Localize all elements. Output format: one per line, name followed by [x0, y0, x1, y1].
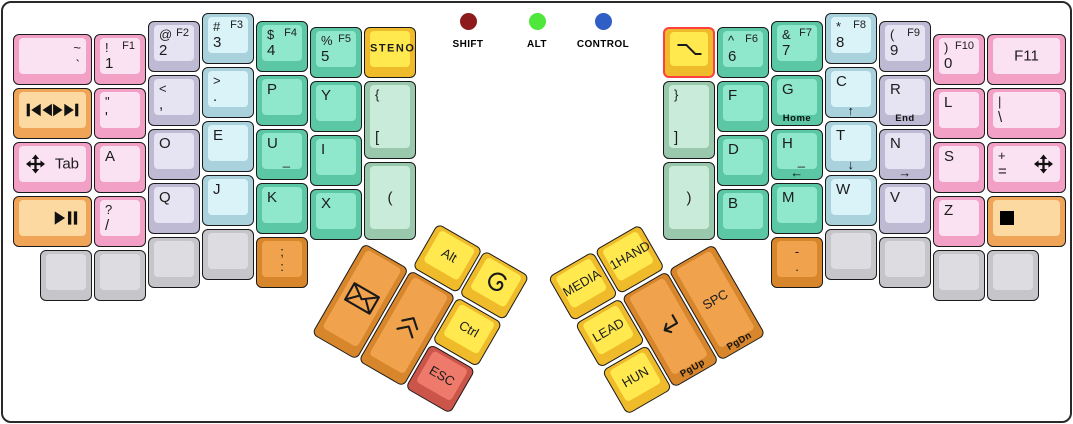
key-stop[interactable] [987, 196, 1066, 247]
key-z[interactable]: Z [933, 196, 985, 247]
key-k-cap: K [262, 187, 302, 223]
key-blank-r1-cap [831, 233, 871, 269]
key-t-legend: T [836, 128, 845, 143]
key-blank-r2[interactable] [879, 237, 931, 288]
key-semicolon-cap: ;: [262, 241, 302, 277]
key-h-front-legend: ← [772, 168, 822, 179]
key-a[interactable]: A [94, 142, 146, 193]
prev-track-icon [26, 102, 54, 119]
key-a-legend: A [105, 149, 115, 164]
key-5[interactable]: %F55 [310, 27, 362, 78]
key-c-cap: C [831, 71, 871, 107]
key-g[interactable]: GHome [771, 75, 823, 126]
move-icon [1034, 155, 1053, 174]
debian-swirl-icon [473, 262, 519, 302]
key-x-cap: X [316, 193, 356, 229]
key-3-cap: #F33 [208, 17, 248, 53]
key-quote-legend: ' [105, 110, 108, 125]
key-1-legend: 1 [105, 56, 113, 71]
key-j-cap: J [208, 179, 248, 215]
key-media-legend: MEDIA [561, 268, 602, 299]
key-8-legend: F8 [853, 20, 866, 31]
key-right-brace-legend: ] [674, 130, 678, 145]
key-debian-cap [470, 257, 523, 308]
key-4-legend: 4 [267, 43, 275, 58]
alt-indicator-label: ALT [527, 39, 547, 50]
key-right-paren[interactable]: ) [663, 162, 715, 240]
key-backslash-legend: | [998, 95, 1001, 108]
key-9-cap: (F99 [885, 25, 925, 61]
key-g-front-legend: Home [772, 114, 822, 125]
key-slash-cap: ?/ [100, 200, 140, 236]
key-w-legend: W [836, 182, 850, 197]
move-icon [26, 155, 45, 174]
key-z-cap: Z [939, 200, 979, 236]
key-lead-cap: LEAD [582, 304, 635, 355]
key-quote-cap: "' [100, 92, 140, 128]
key-f11-cap: F11 [993, 38, 1060, 74]
key-q[interactable]: Q [148, 183, 200, 234]
key-left-bracket-legend: [ [375, 130, 379, 145]
key-hun-cap: HUN [609, 351, 662, 402]
key-z-legend: Z [944, 203, 953, 218]
key-blank-l4[interactable] [202, 229, 254, 280]
key-tab-cap: Tab [19, 146, 86, 182]
key-e-cap: E [208, 125, 248, 161]
key-c-legend: C [836, 74, 847, 89]
key-quote-legend: " [105, 95, 110, 108]
key-3-legend: 3 [213, 35, 221, 50]
key-p[interactable]: P [256, 75, 308, 126]
key-blank-r4-cap [993, 254, 1033, 290]
key-backslash-cap: |\ [993, 92, 1060, 128]
key-n[interactable]: N→ [879, 129, 931, 180]
key-6-legend: F6 [745, 34, 758, 45]
key-j[interactable]: J [202, 175, 254, 226]
key-r-front-legend: End [880, 114, 930, 125]
key-4-legend: F4 [284, 28, 297, 39]
key-o-legend: O [159, 136, 171, 151]
key-minus[interactable]: -. [771, 237, 823, 288]
key-1-legend: F1 [122, 41, 135, 52]
key-m-legend: M [782, 190, 795, 205]
key-r-legend: R [890, 82, 901, 97]
key-semicolon-legend: : [262, 260, 302, 273]
key-minus-cap: -. [777, 241, 817, 277]
key-steno[interactable]: STENO [364, 27, 416, 78]
key-x[interactable]: X [310, 189, 362, 240]
key-e[interactable]: E [202, 121, 254, 172]
key-2-cap: @F22 [154, 25, 194, 61]
key-slash-legend: ? [105, 203, 112, 216]
key-grave-cap: ~` [19, 38, 86, 74]
key-e-legend: E [213, 128, 223, 143]
key-8-legend: 8 [836, 35, 844, 50]
option-icon [670, 40, 708, 58]
key-g-legend: G [782, 82, 794, 97]
key-blank-r4[interactable] [987, 250, 1039, 301]
key-0-legend: ) [944, 41, 948, 54]
key-grave-legend: ` [76, 58, 80, 71]
key-0[interactable]: )F100 [933, 34, 985, 85]
key-i[interactable]: I [310, 135, 362, 186]
key-left-bracket-cap: {[ [370, 85, 410, 148]
key-p-legend: P [267, 82, 277, 97]
key-i-cap: I [316, 139, 356, 175]
key-esc-legend: ESC [421, 360, 462, 391]
key-quote[interactable]: "' [94, 88, 146, 139]
key-5-legend: 5 [321, 49, 329, 64]
key-m-cap: M [777, 187, 817, 223]
key-semicolon[interactable]: ;: [256, 237, 308, 288]
key-7-cap: &F77 [777, 25, 817, 61]
key-h-cap: H_ [777, 133, 817, 169]
key-1hand-cap: 1HAND [602, 231, 655, 282]
key-7-legend: 7 [782, 43, 790, 58]
key-f11-legend: F11 [993, 49, 1060, 64]
key-plus-equals-cap: += [993, 146, 1060, 182]
key-8-legend: * [836, 20, 841, 33]
key-option[interactable] [663, 27, 715, 78]
key-n-front-legend: → [880, 168, 930, 179]
key-d-legend: D [728, 142, 739, 157]
key-comma-legend: , [159, 97, 163, 112]
key-a-cap: A [100, 146, 140, 182]
key-5-legend: % [321, 34, 333, 47]
alt-indicator-dot [529, 13, 546, 30]
key-backslash[interactable]: |\ [987, 88, 1066, 139]
key-x-legend: X [321, 196, 331, 211]
key-n-legend: N [890, 136, 901, 151]
key-s-legend: S [944, 149, 954, 164]
key-g-cap: G [777, 79, 817, 115]
key-0-legend: F10 [955, 41, 974, 52]
key-0-legend: 0 [944, 56, 952, 71]
key-period-cap: >. [208, 71, 248, 107]
key-9-legend: ( [890, 28, 894, 41]
control-indicator-label: CONTROL [577, 39, 629, 50]
key-grave-legend: ~ [73, 41, 81, 54]
key-media-cap: MEDIA [555, 258, 608, 309]
envelope-icon [339, 278, 385, 318]
key-6-legend: 6 [728, 49, 736, 64]
key-f11[interactable]: F11 [987, 34, 1066, 85]
key-right-brace-cap: }] [669, 85, 709, 148]
key-s-cap: S [939, 146, 979, 182]
keyboard-board: ~`Tab!F11"'A?/@F22<,OQ#F33>.EJ$F44PU_K%F… [1, 1, 1072, 423]
key-tab-legend: Tab [55, 157, 79, 172]
key-7-legend: F7 [799, 28, 812, 39]
key-6[interactable]: ^F66 [717, 27, 769, 78]
key-c-front-legend: ↑ [826, 106, 876, 117]
key-blank-l2[interactable] [94, 250, 146, 301]
key-2-legend: 2 [159, 43, 167, 58]
key-v[interactable]: V [879, 183, 931, 234]
key-u-cap: U_ [262, 133, 302, 169]
key-o[interactable]: O [148, 129, 200, 180]
key-slash-legend: / [105, 218, 109, 233]
keyboard-layout-screenshot: ~`Tab!F11"'A?/@F22<,OQ#F33>.EJ$F44PU_K%F… [0, 0, 1073, 424]
key-y-cap: Y [316, 85, 356, 121]
shift-indicator-label: SHIFT [453, 39, 484, 50]
key-1-cap: !F11 [100, 38, 140, 74]
key-left-paren-cap: ( [370, 166, 410, 229]
key-8-cap: *F88 [831, 17, 871, 53]
key-3-legend: # [213, 20, 220, 33]
key-h-legend: H [782, 136, 793, 151]
key-9-legend: 9 [890, 43, 898, 58]
key-t-cap: T [831, 125, 871, 161]
key-period-legend: . [213, 89, 217, 104]
control-indicator-dot [595, 13, 612, 30]
key-comma[interactable]: <, [148, 75, 200, 126]
key-slash[interactable]: ?/ [94, 196, 146, 247]
key-5-cap: %F55 [316, 31, 356, 67]
key-blank-l1[interactable] [40, 250, 92, 301]
key-4-cap: $F44 [262, 25, 302, 61]
key-7-legend: & [782, 28, 791, 41]
key-3-legend: F3 [230, 20, 243, 31]
key-i-legend: I [321, 142, 325, 157]
key-blank-r3[interactable] [933, 250, 985, 301]
key-r[interactable]: REnd [879, 75, 931, 126]
key-f-cap: F [723, 85, 763, 121]
key-blank-l3[interactable] [148, 237, 200, 288]
key-blank-r2-cap [885, 241, 925, 277]
key-7[interactable]: &F77 [771, 21, 823, 72]
key-y[interactable]: Y [310, 81, 362, 132]
key-left-bracket-legend: { [375, 88, 379, 101]
key-l-legend: L [944, 95, 952, 110]
key-hun-legend: HUN [615, 361, 656, 392]
key-blank-l1-cap [46, 254, 86, 290]
stop-icon [1000, 211, 1014, 225]
key-left-paren-legend: ( [370, 190, 410, 205]
key-m[interactable]: M [771, 183, 823, 234]
key-4-legend: $ [267, 28, 274, 41]
key-o-cap: O [154, 133, 194, 169]
key-tab[interactable]: Tab [13, 142, 92, 193]
key-q-legend: Q [159, 190, 171, 205]
key-minus-legend: . [777, 260, 817, 273]
key-right-brace[interactable]: }] [663, 81, 715, 159]
key-period-legend: > [213, 74, 221, 87]
play-pause-icon [54, 210, 79, 227]
key-left-paren[interactable]: ( [364, 162, 416, 240]
key-6-legend: ^ [728, 34, 734, 47]
key-5-legend: F5 [338, 34, 351, 45]
key-h[interactable]: H_← [771, 129, 823, 180]
key-2-legend: @ [159, 28, 172, 41]
key-j-legend: J [213, 182, 221, 197]
key-right-paren-cap: ) [669, 166, 709, 229]
key-alt-cap: Alt [423, 230, 476, 281]
key-semicolon-legend: ; [262, 245, 302, 258]
key-play-pause[interactable] [13, 196, 92, 247]
key-k[interactable]: K [256, 183, 308, 234]
key-right-brace-legend: } [674, 88, 678, 101]
key-grave[interactable]: ~` [13, 34, 92, 85]
key-prev-next-track-cap [19, 92, 86, 128]
return-icon [646, 307, 691, 345]
key-u-legend: U [267, 136, 278, 151]
key-b-cap: B [723, 193, 763, 229]
next-track-icon [51, 102, 79, 119]
key-f-legend: F [728, 88, 737, 103]
key-d-cap: D [723, 139, 763, 175]
key-minus-legend: - [777, 245, 817, 258]
key-stop-cap [993, 200, 1060, 236]
key-c[interactable]: C↑ [825, 67, 877, 118]
key-l[interactable]: L [933, 88, 985, 139]
key-2[interactable]: @F22 [148, 21, 200, 72]
key-p-cap: P [262, 79, 302, 115]
key-comma-cap: <, [154, 79, 194, 115]
key-k-legend: K [267, 190, 277, 205]
key-steno-cap: STENO [370, 31, 410, 67]
key-d[interactable]: D [717, 135, 769, 186]
key-left-bracket[interactable]: {[ [364, 81, 416, 159]
key-option-cap [670, 32, 708, 66]
shift-indicator-dot [460, 13, 477, 30]
key-b-legend: B [728, 196, 738, 211]
key-u[interactable]: U_ [256, 129, 308, 180]
key-blank-r3-cap [939, 254, 979, 290]
key-blank-l4-cap [208, 233, 248, 269]
key-right-paren-legend: ) [669, 190, 709, 205]
key-alt-legend: Alt [429, 240, 470, 271]
key-plus-equals-legend: + [998, 149, 1006, 162]
key-ctrl-legend: Ctrl [448, 313, 489, 344]
key-y-legend: Y [321, 88, 331, 103]
key-l-cap: L [939, 92, 979, 128]
double-chevron-up-icon [386, 305, 432, 345]
key-play-pause-cap [19, 200, 86, 236]
key-steno-legend: STENO [370, 44, 410, 55]
key-s[interactable]: S [933, 142, 985, 193]
key-blank-l2-cap [100, 254, 140, 290]
key-9[interactable]: (F99 [879, 21, 931, 72]
key-blank-l3-cap [154, 241, 194, 277]
key-comma-legend: < [159, 82, 167, 95]
key-f[interactable]: F [717, 81, 769, 132]
key-n-cap: N [885, 133, 925, 169]
key-backslash-legend: \ [998, 110, 1002, 125]
key-q-cap: Q [154, 187, 194, 223]
key-plus-equals-legend: = [998, 164, 1007, 179]
key-u-legend: _ [283, 154, 290, 167]
key-t[interactable]: T↓ [825, 121, 877, 172]
key-lead-legend: LEAD [588, 314, 629, 345]
key-1-legend: ! [105, 41, 109, 54]
key-prev-next-track[interactable] [13, 88, 92, 139]
key-t-front-legend: ↓ [826, 160, 876, 171]
key-2-legend: F2 [176, 28, 189, 39]
key-9-legend: F9 [907, 28, 920, 39]
key-4[interactable]: $F44 [256, 21, 308, 72]
key-w-cap: W [831, 179, 871, 215]
key-r-cap: R [885, 79, 925, 115]
key-1hand-legend: 1HAND [607, 241, 648, 272]
key-b[interactable]: B [717, 189, 769, 240]
key-w[interactable]: W [825, 175, 877, 226]
key-period[interactable]: >. [202, 67, 254, 118]
key-v-legend: V [890, 190, 900, 205]
key-blank-r1[interactable] [825, 229, 877, 280]
key-0-cap: )F100 [939, 38, 979, 74]
key-1[interactable]: !F11 [94, 34, 146, 85]
key-v-cap: V [885, 187, 925, 223]
key-plus-equals[interactable]: += [987, 142, 1066, 193]
key-spc-legend: SPC [695, 284, 736, 315]
key-6-cap: ^F66 [723, 31, 763, 67]
key-8[interactable]: *F88 [825, 13, 877, 64]
key-3[interactable]: #F33 [202, 13, 254, 64]
